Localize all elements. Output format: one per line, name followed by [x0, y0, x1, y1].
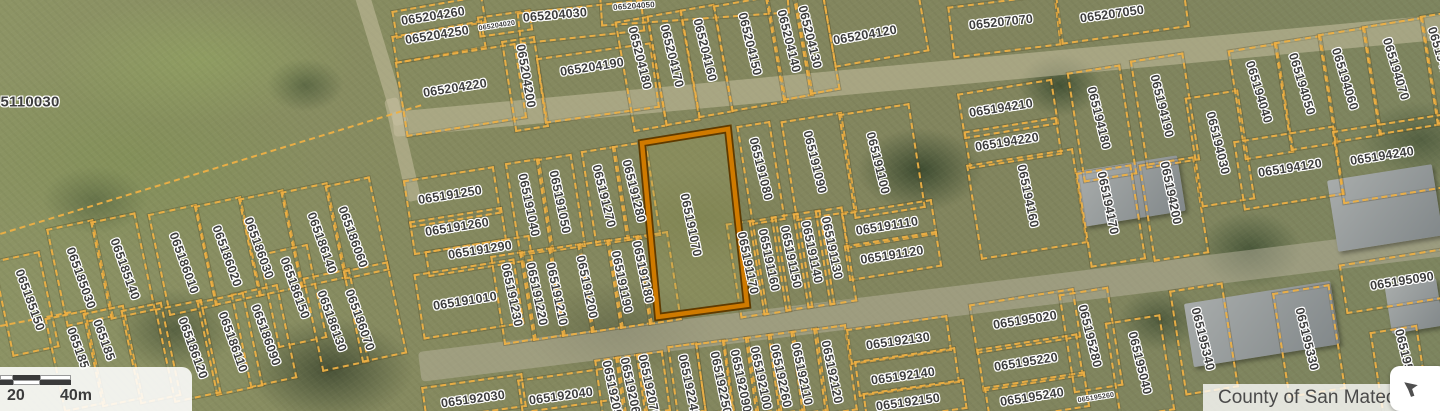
nw-arrow-icon	[1402, 380, 1420, 398]
parcel-label-5110030: 5110030	[1, 94, 60, 111]
scale-bar-graphic	[0, 375, 71, 385]
attribution-text: County of San Mateo	[1203, 387, 1397, 409]
scale-label-20: 20	[7, 387, 25, 405]
scale-label-40m: 40m	[60, 387, 92, 405]
scale-bar: 20 40m	[0, 367, 192, 411]
map-canvas[interactable]: 5110030065204260065204250065204020065204…	[0, 0, 1440, 411]
extent-arrow-button[interactable]	[1390, 366, 1440, 411]
